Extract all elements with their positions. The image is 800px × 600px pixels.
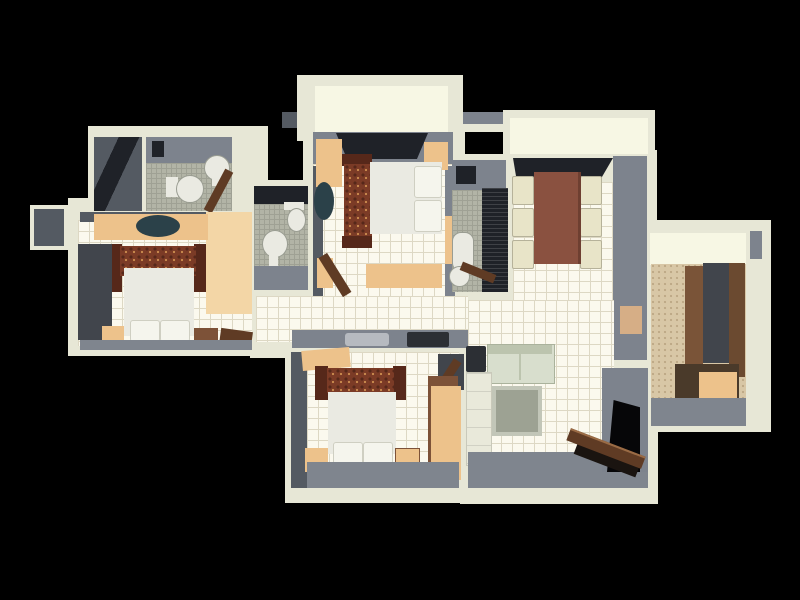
ornate-headboard-rug [327,368,394,393]
bathroom1-window [152,141,164,157]
sofa-cushion-divider [519,354,521,380]
dining-chair [580,208,602,237]
kitchen-hob-icon [407,332,449,347]
dining-chair [580,240,602,269]
store-room-floor [94,137,142,211]
master-dresser [366,264,442,288]
pillow-icon [130,320,160,342]
pillow-icon [414,200,442,232]
bottom-bedroom-gray-band [307,462,459,488]
bed-frame-master-bottom [342,236,372,248]
dining-chair [580,176,602,205]
floor-plan-render [0,0,800,600]
toilet-icon [176,175,204,203]
sofa-backrest [488,345,552,354]
left-bedroom-floor-shadow [80,340,252,350]
utility-top-wall [650,233,746,265]
utility-pillar [750,231,762,259]
left-bedroom-side-panel [206,212,252,314]
wardrobe-cabinet-a [685,266,703,368]
side-table [466,346,486,372]
dining-table [534,172,581,264]
dining-chair [512,176,534,205]
middle-bathroom-lower-wall [254,266,308,290]
pillow-icon [160,320,190,342]
ornate-runner-rug [344,164,372,238]
wall-art [620,306,642,334]
top-balcony-floor [310,86,450,132]
dining-chair [512,240,534,269]
ensuite-window [456,166,476,184]
dining-chair [512,208,534,237]
master-cabinet-topleft [316,139,342,187]
pillow-icon [414,166,442,198]
wardrobe-cabinet-c [729,263,745,377]
ceiling-fan-icon [314,182,334,220]
utility-gray-floor [651,398,746,426]
coffee-table [492,386,542,436]
toilet-icon [287,208,306,232]
service-shaft-duct [34,209,64,246]
wardrobe-cabinet-b [703,263,729,363]
kitchen-sink-icon [345,333,389,346]
ceiling-fan-icon [136,215,180,237]
kitchen-balcony-floor [510,118,648,154]
basin-pedestal-2 [269,252,278,266]
